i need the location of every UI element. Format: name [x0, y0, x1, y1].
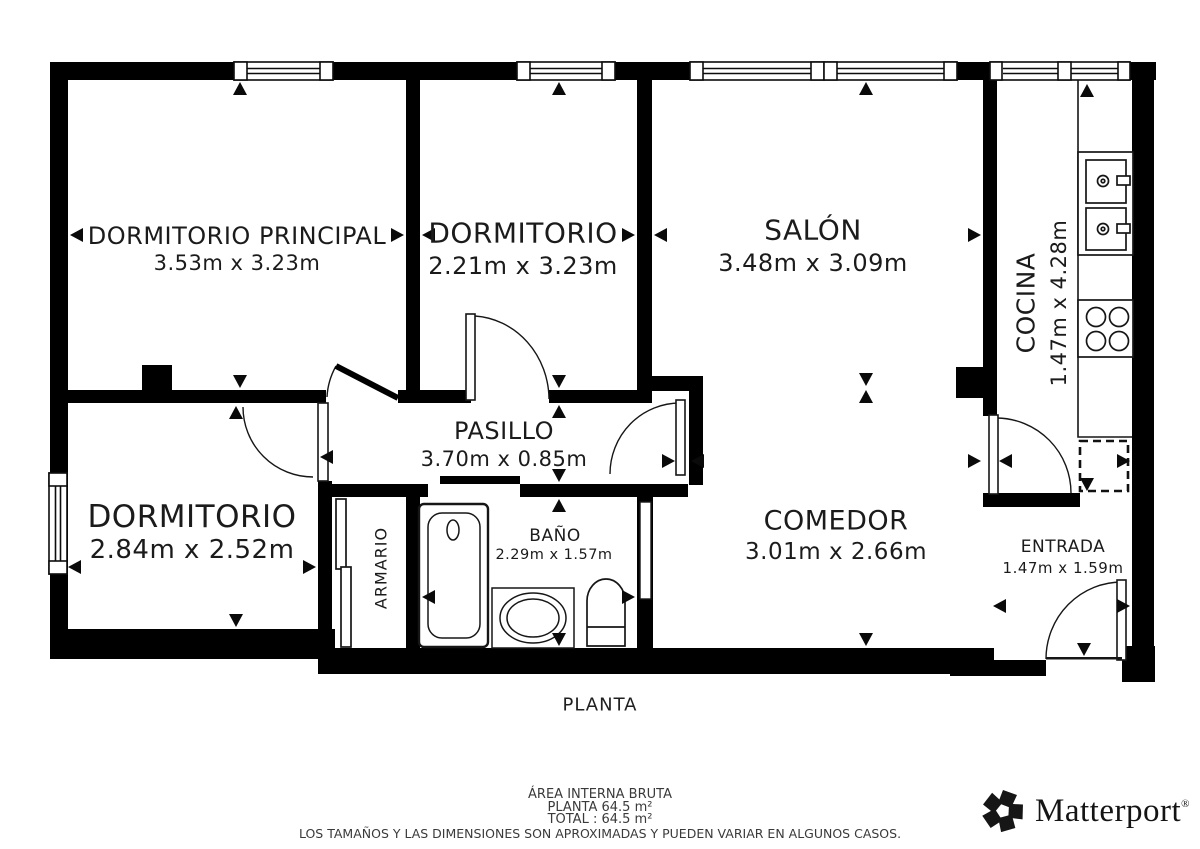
room-label-pasillo: PASILLO	[454, 417, 554, 445]
counter-icon	[1078, 80, 1132, 437]
room-dims-entrada: 1.47m x 1.59m	[1003, 559, 1124, 577]
window	[517, 62, 615, 80]
room-label-cocina: COCINA	[1012, 253, 1041, 354]
bano-pocket-door-icon	[640, 502, 651, 599]
stove-icon	[1078, 300, 1133, 357]
room-dims-salon: 3.48m x 3.09m	[718, 249, 908, 277]
entrada-threshold	[1046, 657, 1122, 660]
plan-title: PLANTA	[563, 695, 638, 716]
room-label-entrada: ENTRADA	[1021, 537, 1106, 557]
windows	[49, 62, 1130, 574]
room-label-dormitorio-bottom: DORMITORIO	[87, 499, 296, 535]
toilet-icon	[587, 579, 625, 646]
room-dims-pasillo: 3.70m x 0.85m	[421, 447, 588, 471]
footer-total-area: TOTAL : 64.5 m²	[548, 812, 653, 827]
room-dims-comedor: 3.01m x 2.66m	[745, 539, 927, 565]
room-label-bano: BAÑO	[529, 526, 580, 546]
kitchen-sink-icon	[1078, 152, 1133, 255]
floorplan-drawing	[0, 0, 1200, 849]
window	[990, 62, 1130, 80]
room-label-dormitorio-principal: DORMITORIO PRINCIPAL	[88, 222, 386, 250]
room-dims-bano: 2.29m x 1.57m	[495, 547, 612, 563]
room-label-comedor: COMEDOR	[764, 506, 909, 537]
room-label-salon: SALÓN	[764, 214, 862, 247]
matterport-wordmark: Matterport®	[1035, 793, 1190, 830]
kitchen-fixtures	[1078, 80, 1133, 491]
room-label-dormitorio-top: DORMITORIO	[428, 217, 617, 250]
matterport-logo-icon	[980, 788, 1026, 834]
door-leaf	[336, 366, 398, 398]
registered-mark: ®	[1181, 798, 1190, 810]
window	[234, 62, 333, 80]
matterport-logo: Matterport®	[980, 788, 1190, 834]
room-dims-dormitorio-bottom: 2.84m x 2.52m	[90, 535, 295, 565]
window	[49, 473, 67, 574]
room-dims-dormitorio-top: 2.21m x 3.23m	[428, 252, 618, 280]
room-label-armario: ARMARIO	[372, 527, 391, 609]
footer-disclaimer: LOS TAMAÑOS Y LAS DIMENSIONES SON APROXI…	[299, 826, 901, 841]
armario-sliding-door-icon	[336, 499, 351, 647]
floorplan-page: DORMITORIO PRINCIPAL 3.53m x 3.23m DORMI…	[0, 0, 1200, 849]
room-dims-dormitorio-principal: 3.53m x 3.23m	[154, 251, 321, 275]
room-dims-cocina: 1.47m x 4.28m	[1047, 220, 1071, 387]
window	[690, 62, 957, 80]
bathroom-fixtures	[419, 504, 625, 648]
bathtub-icon	[419, 504, 488, 647]
